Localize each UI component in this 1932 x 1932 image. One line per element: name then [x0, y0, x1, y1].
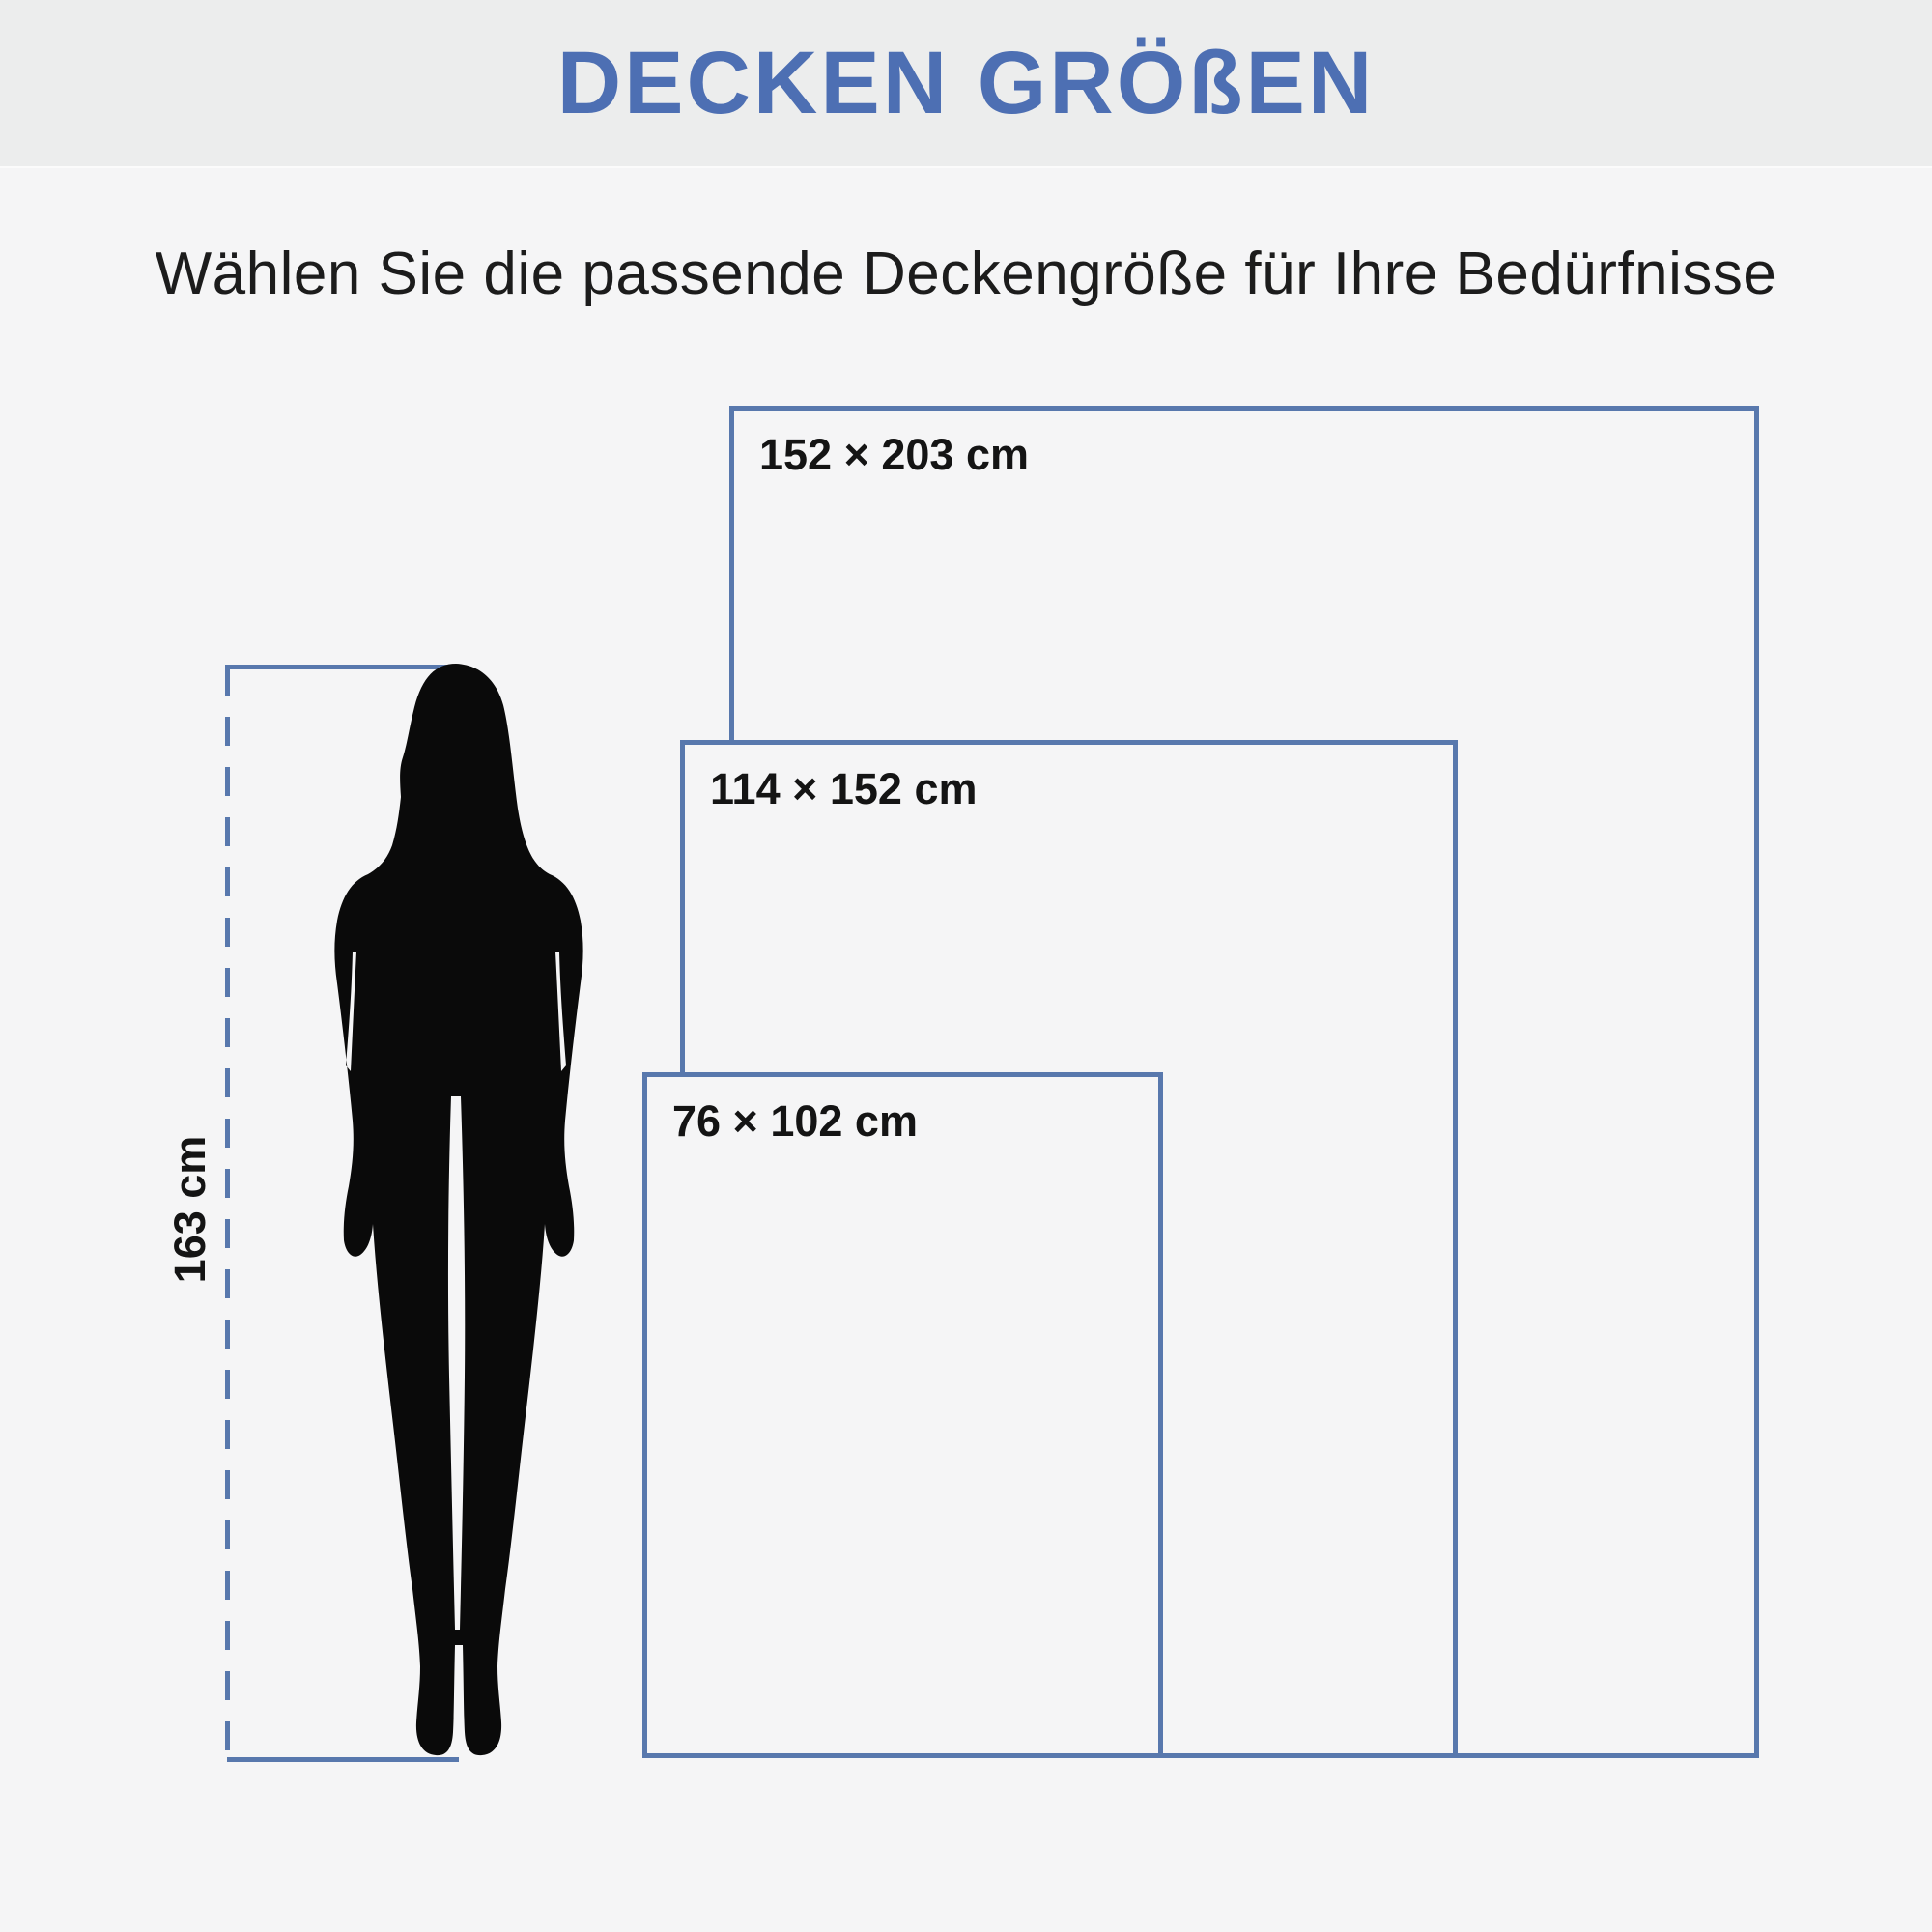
- page-background: DECKEN GRÖßEN Wählen Sie die passende De…: [0, 0, 1932, 1932]
- size-label-medium: 114 × 152 cm: [685, 745, 1453, 814]
- size-label-small: 76 × 102 cm: [647, 1077, 1158, 1147]
- size-rect-small: 76 × 102 cm: [642, 1072, 1163, 1758]
- size-label-large: 152 × 203 cm: [734, 411, 1754, 480]
- height-measure-dashed-line: [225, 667, 230, 1760]
- person-height-label: 163 cm: [165, 1136, 215, 1284]
- page-title: DECKEN GRÖßEN: [557, 33, 1376, 134]
- woman-silhouette-icon: [324, 662, 594, 1758]
- subtitle-text: Wählen Sie die passende Deckengröße für …: [0, 240, 1932, 308]
- header-band: DECKEN GRÖßEN: [0, 0, 1932, 168]
